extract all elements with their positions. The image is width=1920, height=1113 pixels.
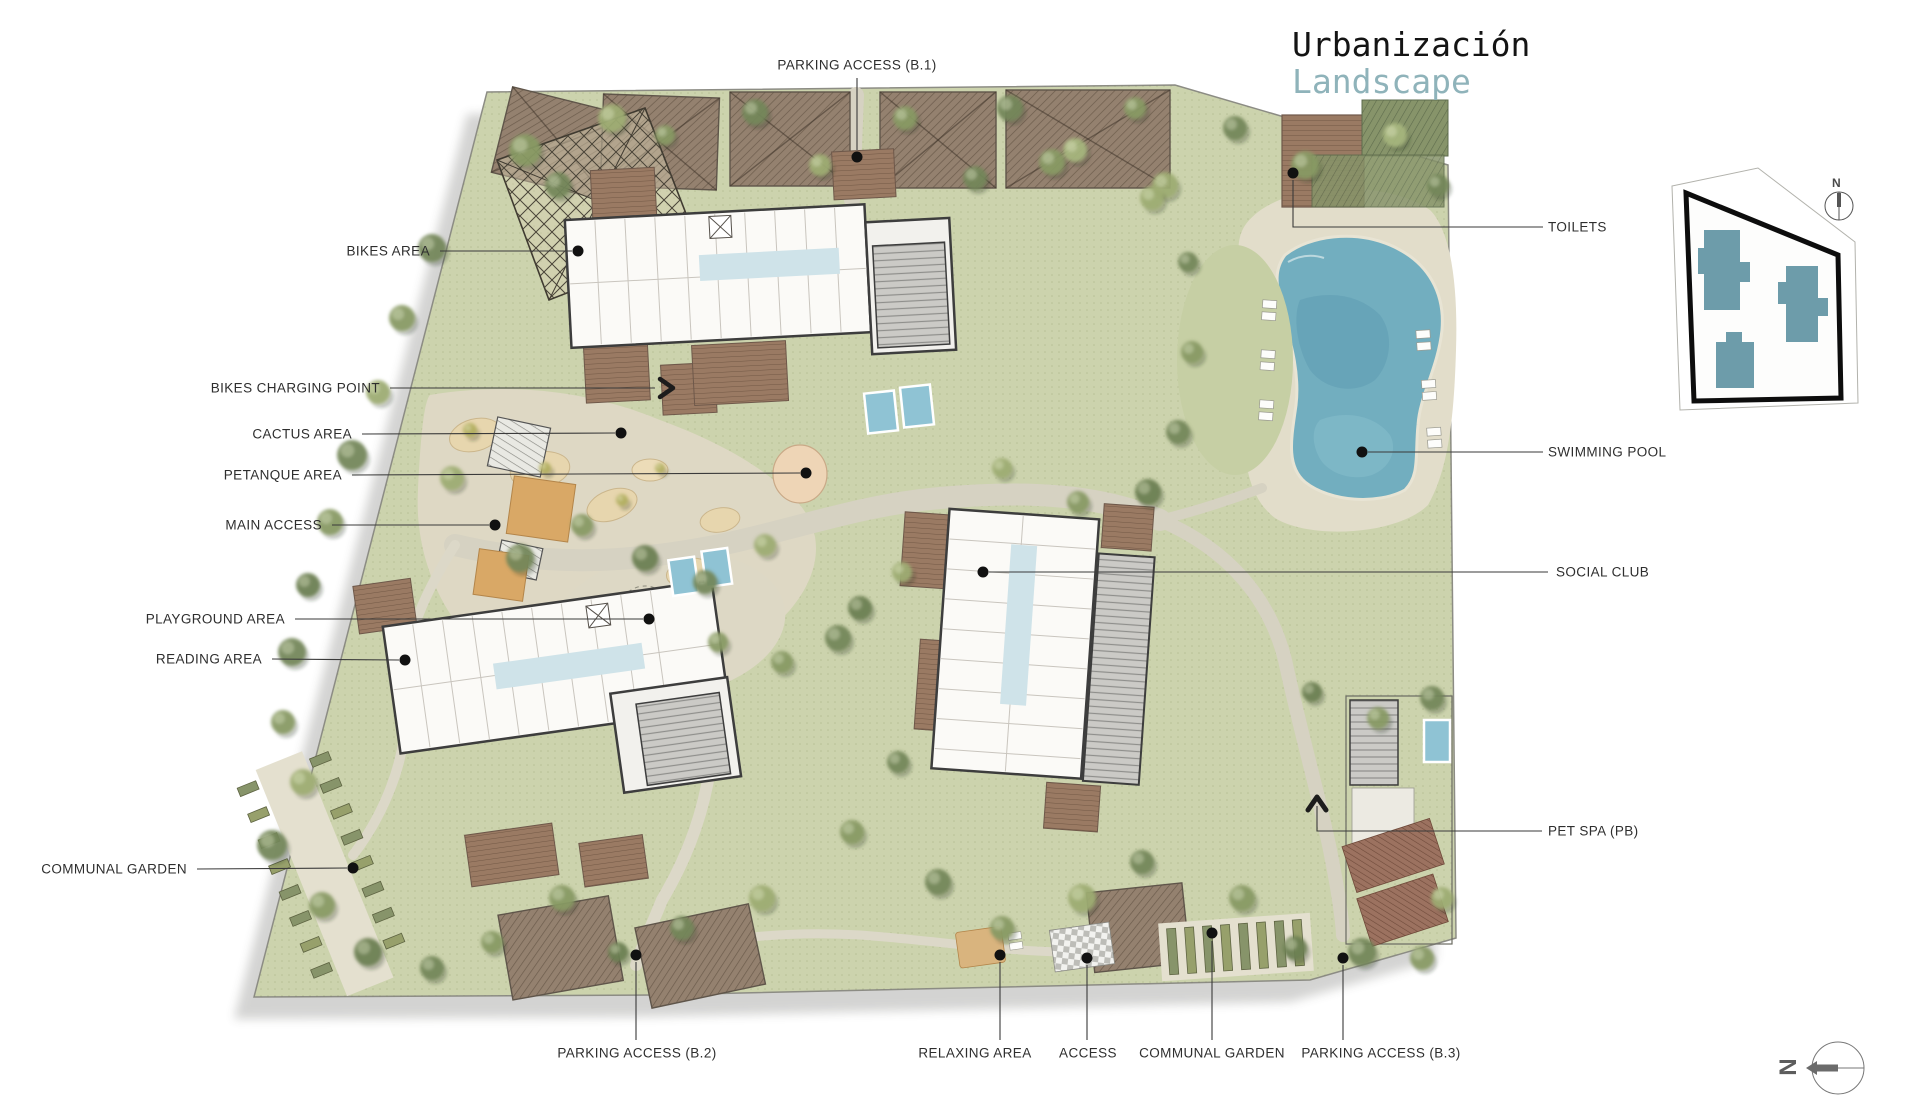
access-paving bbox=[1049, 922, 1114, 972]
label-swimming-pool: SWIMMING POOL bbox=[1548, 445, 1666, 460]
landscape-masterplan: Urbanización Landscape PARKING ACCESS (B… bbox=[0, 0, 1920, 1113]
label-bikes-area: BIKES AREA bbox=[346, 244, 430, 259]
label-access: ACCESS bbox=[1059, 1046, 1117, 1061]
swimming-pool-shape bbox=[1277, 236, 1442, 499]
label-communal-garden-bottom: COMMUNAL GARDEN bbox=[1139, 1046, 1285, 1061]
label-pet-spa: PET SPA (PB) bbox=[1548, 824, 1639, 839]
north-compass bbox=[1806, 1042, 1864, 1094]
label-reading-area: READING AREA bbox=[156, 652, 262, 667]
label-social-club: SOCIAL CLUB bbox=[1556, 565, 1649, 580]
site-plan-drawing bbox=[0, 0, 1920, 1113]
label-communal-garden-left: COMMUNAL GARDEN bbox=[41, 862, 187, 877]
keymap bbox=[1672, 168, 1858, 410]
label-parking-access-b1: PARKING ACCESS (B.1) bbox=[777, 58, 936, 73]
label-playground-area: PLAYGROUND AREA bbox=[146, 612, 285, 627]
label-parking-access-b3: PARKING ACCESS (B.3) bbox=[1301, 1046, 1460, 1061]
title-line-1: Urbanización bbox=[1292, 26, 1530, 63]
drawing-title: Urbanización Landscape bbox=[1292, 26, 1530, 100]
label-relaxing-area: RELAXING AREA bbox=[918, 1046, 1031, 1061]
compass-north-letter: N bbox=[1773, 1058, 1801, 1075]
label-toilets: TOILETS bbox=[1548, 220, 1607, 235]
petanque-court bbox=[773, 445, 827, 503]
label-main-access: MAIN ACCESS bbox=[225, 518, 322, 533]
title-line-2: Landscape bbox=[1292, 63, 1530, 100]
label-petanque-area: PETANQUE AREA bbox=[224, 468, 342, 483]
label-parking-access-b2: PARKING ACCESS (B.2) bbox=[557, 1046, 716, 1061]
keymap-north-letter: N bbox=[1832, 176, 1841, 190]
label-bikes-charging-point: BIKES CHARGING POINT bbox=[211, 381, 380, 396]
label-cactus-area: CACTUS AREA bbox=[252, 427, 352, 442]
